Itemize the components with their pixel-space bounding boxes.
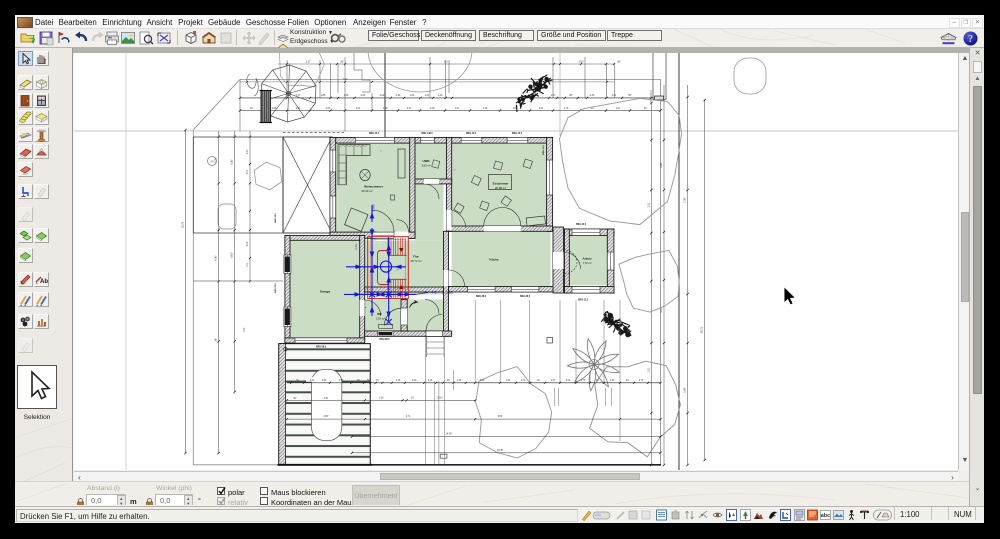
svg-text:25,72 m²: 25,72 m² — [410, 259, 421, 263]
svg-text:Garage: Garage — [320, 290, 331, 294]
svg-text:Anbau: Anbau — [583, 257, 592, 261]
svg-text:7.36°: 7.36° — [684, 197, 687, 203]
svg-text:2.01: 2.01 — [247, 169, 249, 174]
svg-text:BRH 22,5: BRH 22,5 — [466, 133, 477, 135]
svg-text:50°: 50° — [628, 94, 632, 97]
svg-text:BRH 148,5: BRH 148,5 — [421, 132, 433, 135]
svg-text:1.01: 1.01 — [616, 108, 621, 110]
svg-text:2.18°: 2.18° — [437, 397, 442, 399]
svg-text:26,88 m²: 26,88 m² — [495, 186, 506, 190]
svg-text:1.01: 1.01 — [425, 94, 430, 97]
svg-text:.36°: .36° — [215, 338, 218, 342]
svg-text:2.39: 2.39 — [396, 94, 401, 97]
svg-text:1.50: 1.50 — [244, 327, 246, 332]
svg-text:BRH 22,5: BRH 22,5 — [578, 300, 589, 302]
svg-text:.36: .36 — [536, 380, 540, 382]
svg-text:33.73: 33.73 — [182, 221, 185, 228]
svg-text:1.01: 1.01 — [396, 265, 400, 271]
svg-text:2.02: 2.02 — [361, 94, 366, 97]
svg-text:BRH 88,5: BRH 88,5 — [476, 296, 487, 298]
svg-text:2.76: 2.76 — [581, 380, 586, 382]
svg-text:BRH 22,5: BRH 22,5 — [512, 133, 523, 135]
svg-text:Flur: Flur — [413, 255, 419, 259]
svg-text:18.36: 18.36 — [497, 449, 504, 452]
svg-text:2.96: 2.96 — [339, 380, 344, 382]
svg-text:1.61: 1.61 — [539, 108, 544, 110]
svg-text:Abc: Abc — [40, 279, 48, 285]
svg-text:?: ? — [968, 34, 973, 45]
svg-text:29: 29 — [211, 160, 214, 164]
svg-text:1.76: 1.76 — [564, 108, 569, 110]
svg-text:BRH 88,5: BRH 88,5 — [275, 212, 277, 222]
svg-text:BRH 22,5: BRH 22,5 — [576, 224, 587, 226]
svg-text:2.36: 2.36 — [590, 94, 595, 97]
svg-text:BRH 88,5: BRH 88,5 — [520, 296, 531, 298]
svg-text:8.63°: 8.63° — [231, 252, 234, 258]
svg-text:BRH 22,5: BRH 22,5 — [369, 133, 380, 135]
svg-text:36°: 36° — [569, 94, 573, 97]
svg-text:2.01: 2.01 — [647, 202, 650, 207]
svg-text:.45: .45 — [249, 108, 253, 110]
svg-text:.24: .24 — [625, 380, 629, 382]
svg-text:.24: .24 — [590, 108, 594, 110]
svg-text:1.40: 1.40 — [396, 380, 401, 382]
svg-text:2.30: 2.30 — [379, 397, 384, 399]
svg-text:BRH 88,5: BRH 88,5 — [275, 282, 277, 292]
svg-text:3.01: 3.01 — [310, 380, 315, 382]
svg-text:.24: .24 — [410, 397, 414, 399]
svg-text:.36: .36 — [595, 380, 599, 382]
svg-text:2.27: 2.27 — [247, 149, 249, 154]
svg-text:12.00: 12.00 — [444, 60, 451, 63]
svg-text:1.25: 1.25 — [483, 108, 488, 110]
svg-text:7,72 m²: 7,72 m² — [582, 261, 591, 265]
svg-text:2.01: 2.01 — [647, 367, 650, 372]
svg-text:445: 445 — [431, 291, 437, 295]
svg-text:2.02: 2.02 — [380, 94, 385, 97]
svg-text:1.45: 1.45 — [457, 380, 462, 382]
svg-text:Esszimmer: Esszimmer — [493, 182, 510, 186]
svg-text:1.01: 1.01 — [356, 108, 361, 110]
svg-text:4.00: 4.00 — [566, 380, 571, 382]
svg-text:2.24: 2.24 — [354, 244, 358, 250]
svg-text:2.63: 2.63 — [579, 60, 584, 63]
svg-text:1.45: 1.45 — [344, 94, 349, 97]
svg-text:3.47: 3.47 — [407, 108, 412, 110]
svg-text:93.73: 93.73 — [701, 326, 704, 333]
svg-text:2.27: 2.27 — [296, 94, 301, 97]
svg-text:HWR: HWR — [423, 159, 431, 163]
svg-text:BRH 29,5: BRH 29,5 — [543, 144, 545, 154]
svg-text:3,02 m²: 3,02 m² — [376, 317, 385, 321]
svg-text:4.66°: 4.66° — [660, 162, 663, 168]
svg-text:2.74: 2.74 — [639, 380, 644, 382]
svg-text:3.36°: 3.36° — [684, 387, 687, 393]
svg-text:2.39: 2.39 — [430, 108, 435, 110]
svg-text:3.91: 3.91 — [324, 398, 329, 400]
svg-text:.76: .76 — [375, 380, 379, 382]
svg-text:36°: 36° — [617, 60, 621, 63]
svg-text:2.02: 2.02 — [247, 241, 249, 246]
svg-text:1.85: 1.85 — [321, 94, 326, 97]
svg-text:.48: .48 — [446, 380, 450, 382]
svg-text:Wohnzimmer: Wohnzimmer — [364, 185, 384, 189]
svg-text:2.00: 2.00 — [480, 380, 485, 382]
svg-text:14.36°: 14.36° — [446, 433, 453, 436]
svg-text:1.01: 1.01 — [247, 262, 249, 267]
svg-text:5.36°: 5.36° — [231, 159, 234, 165]
svg-text:7.00: 7.00 — [343, 78, 348, 81]
svg-text:1.30: 1.30 — [610, 380, 615, 382]
svg-text:36°: 36° — [340, 60, 344, 63]
svg-text:1.47: 1.47 — [551, 380, 556, 382]
svg-text:2.96: 2.96 — [322, 380, 327, 382]
svg-text:1.020: 1.020 — [442, 290, 453, 295]
svg-text:2.27: 2.27 — [306, 60, 311, 63]
svg-text:36°: 36° — [293, 398, 297, 400]
svg-text:4.36°: 4.36° — [215, 255, 218, 261]
svg-text:3,53 m²: 3,53 m² — [421, 164, 430, 168]
svg-text:20,00 m²: 20,00 m² — [361, 189, 372, 193]
svg-text:1.29: 1.29 — [383, 108, 388, 110]
svg-text:1.61: 1.61 — [326, 108, 331, 110]
svg-text:1.61: 1.61 — [410, 94, 415, 97]
svg-text:4.71: 4.71 — [406, 416, 411, 418]
svg-text:1.01: 1.01 — [612, 94, 617, 97]
svg-text:1.24: 1.24 — [506, 380, 511, 382]
svg-text:abc: abc — [821, 513, 830, 519]
svg-text:1.07: 1.07 — [551, 94, 556, 97]
svg-text:1.29: 1.29 — [438, 94, 443, 97]
svg-text:2.76: 2.76 — [521, 380, 526, 382]
svg-text:1.20: 1.20 — [412, 380, 417, 382]
svg-text:6.50: 6.50 — [498, 416, 503, 418]
svg-text:.53: .53 — [643, 108, 647, 110]
svg-text:Küche: Küche — [489, 258, 499, 262]
svg-text:1.01: 1.01 — [455, 108, 460, 110]
svg-text:BRH 88,5: BRH 88,5 — [316, 347, 327, 349]
svg-text:2.13: 2.13 — [428, 380, 433, 382]
svg-text:4.65°: 4.65° — [323, 416, 328, 418]
svg-text:BRH 88,5: BRH 88,5 — [379, 339, 390, 341]
